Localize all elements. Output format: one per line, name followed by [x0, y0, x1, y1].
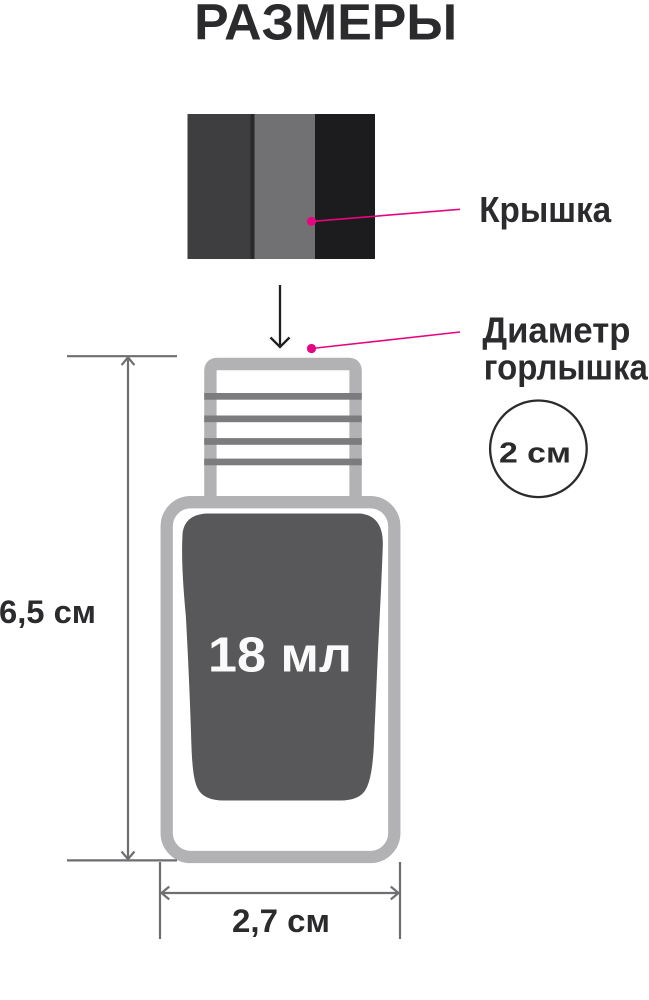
- svg-text:Крышка: Крышка: [479, 189, 612, 230]
- svg-text:6,5 см: 6,5 см: [0, 594, 96, 630]
- svg-text:Диаметр: Диаметр: [482, 310, 630, 351]
- svg-text:РАЗМЕРЫ: РАЗМЕРЫ: [194, 0, 457, 50]
- svg-text:2 см: 2 см: [499, 438, 571, 470]
- svg-text:18 мл: 18 мл: [208, 628, 352, 683]
- svg-text:2,7 см: 2,7 см: [232, 903, 330, 939]
- svg-text:горлышка: горлышка: [484, 347, 649, 388]
